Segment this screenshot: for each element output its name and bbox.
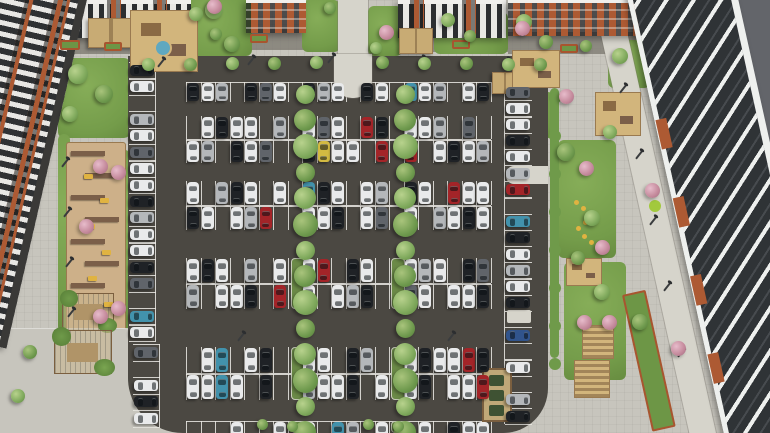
tree <box>584 210 600 226</box>
tree <box>394 187 416 209</box>
flowering-tree-pink <box>602 315 617 330</box>
tree <box>293 290 318 315</box>
tree <box>396 163 415 182</box>
tree <box>62 106 78 122</box>
tree <box>534 58 547 71</box>
aerial-courtyard-render <box>0 0 770 433</box>
vegetation-layer <box>0 0 770 433</box>
tree <box>11 389 25 403</box>
flowering-tree-pink <box>111 165 126 180</box>
flowering-tree-pink <box>515 21 530 36</box>
tree <box>184 58 197 71</box>
hedge-bush <box>549 168 561 180</box>
tree <box>393 368 418 393</box>
tree <box>394 265 416 287</box>
flowering-tree-pink <box>559 89 574 104</box>
tree <box>396 85 415 104</box>
tree <box>394 109 416 131</box>
bush <box>257 419 268 430</box>
tree <box>393 290 418 315</box>
flowering-tree-pink <box>93 159 108 174</box>
tree <box>396 397 415 416</box>
tree <box>95 85 113 103</box>
tree <box>68 64 88 84</box>
tree <box>502 58 515 71</box>
tree <box>539 35 553 49</box>
tree <box>612 48 628 64</box>
tree <box>396 319 415 338</box>
flowering-tree-pink <box>207 0 222 14</box>
flowering-tree-pink <box>579 161 594 176</box>
tree <box>189 7 203 21</box>
tree <box>294 187 316 209</box>
tree <box>370 42 382 54</box>
flowering-tree-pink <box>645 183 660 198</box>
tree <box>224 36 240 52</box>
tree <box>296 85 315 104</box>
hedge-bush <box>549 320 561 332</box>
tree <box>632 314 648 330</box>
tree <box>603 125 617 139</box>
flowering-tree-pink <box>595 240 610 255</box>
tree <box>580 40 592 52</box>
flowering-tree-pink <box>79 219 94 234</box>
tree <box>210 28 222 40</box>
hedge-bush <box>549 244 561 256</box>
tree <box>142 58 155 71</box>
tree <box>296 241 315 260</box>
hedge-bush <box>549 206 561 218</box>
tree <box>441 13 455 27</box>
bush <box>287 421 298 432</box>
hedge-bush <box>549 282 561 294</box>
tree <box>310 56 323 69</box>
tree <box>376 56 389 69</box>
hedge <box>550 88 559 358</box>
tree <box>557 143 575 161</box>
tree <box>293 212 318 237</box>
tree <box>418 57 431 70</box>
tree <box>396 241 415 260</box>
tree <box>294 343 316 365</box>
tree <box>571 251 585 265</box>
tree <box>294 109 316 131</box>
tree <box>293 134 318 159</box>
tree <box>394 343 416 365</box>
flowering-tree-pink <box>577 315 592 330</box>
tree <box>296 163 315 182</box>
flowering-tree-pink <box>379 25 394 40</box>
tree <box>294 265 316 287</box>
tree <box>296 397 315 416</box>
tree <box>393 134 418 159</box>
hedge-bush <box>549 358 561 370</box>
tree <box>296 319 315 338</box>
tree <box>226 57 239 70</box>
tree <box>393 212 418 237</box>
bush <box>363 419 374 430</box>
tree <box>594 284 610 300</box>
tree <box>293 368 318 393</box>
tree <box>268 57 281 70</box>
flowering-tree-pink <box>671 341 686 356</box>
bush <box>393 421 404 432</box>
tree <box>464 30 476 42</box>
tree <box>23 345 37 359</box>
flowering-tree-pink <box>111 301 126 316</box>
flowering-tree-pink <box>93 309 108 324</box>
tree <box>460 57 473 70</box>
tree <box>324 2 336 14</box>
hedge-bush <box>549 130 561 142</box>
